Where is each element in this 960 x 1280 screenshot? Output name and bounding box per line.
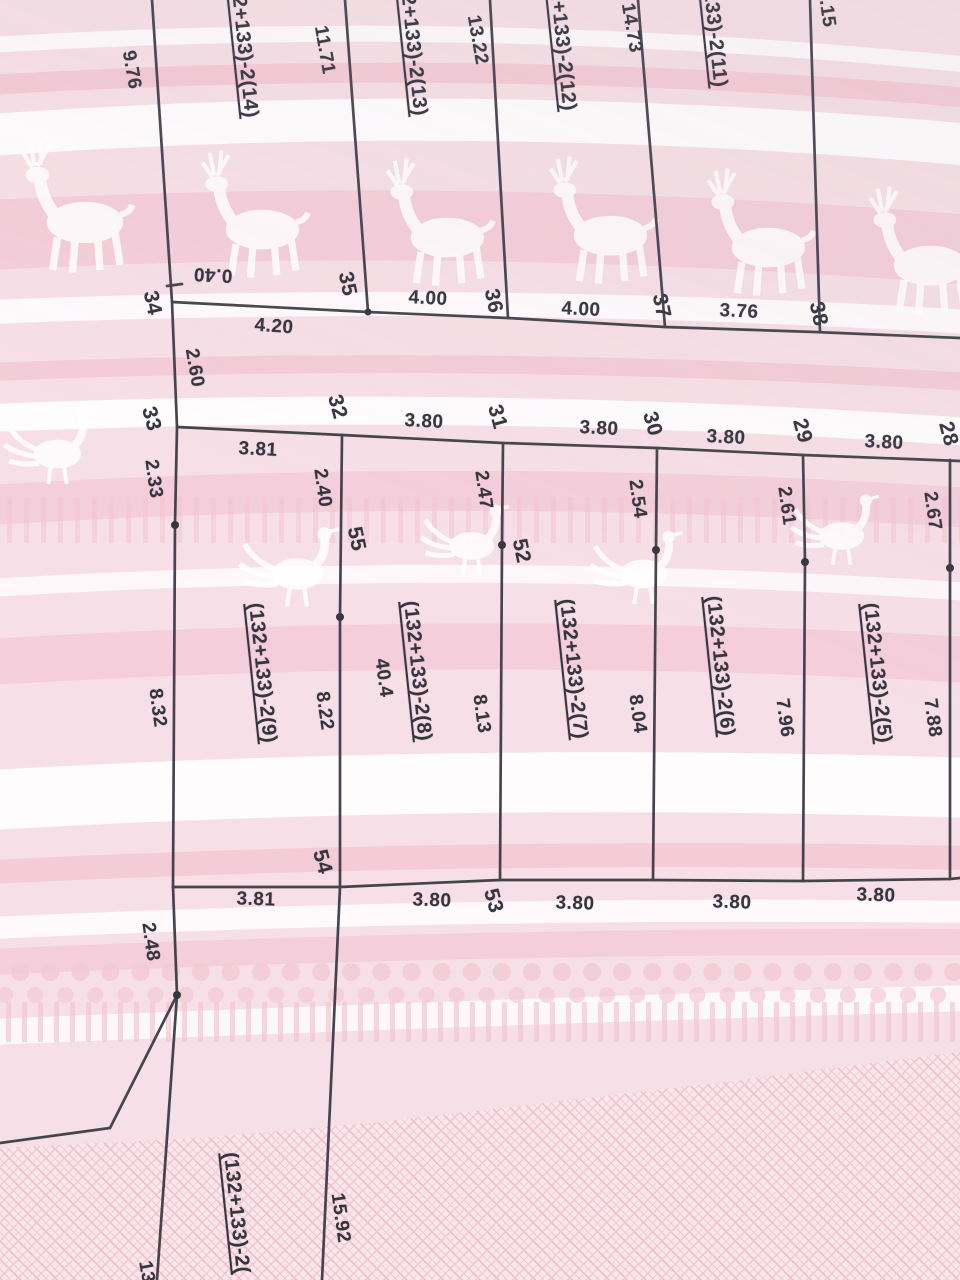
- point-52-label: 52: [507, 537, 536, 566]
- dim-3-80-t3: 3.80: [706, 426, 746, 450]
- point-37-label: 37: [647, 292, 676, 321]
- dim-0-40: 0.40: [193, 262, 233, 286]
- dim-8-15: 8.15: [812, 0, 839, 29]
- point-38-label: 38: [804, 300, 833, 329]
- dim-13-cut: 13: [133, 1259, 159, 1280]
- dim-3-80-t1: 3.80: [404, 410, 444, 434]
- dim-3-80-b3: 3.80: [712, 891, 752, 914]
- dim-3-80-b1: 3.80: [412, 889, 452, 912]
- dim-3-80-b4: 3.80: [856, 884, 896, 907]
- cadastral-map-photo: 9.76 (132+133)-2(14) 11.71 (132+133)-2(1…: [0, 0, 960, 1280]
- dim-3-80-t2: 3.80: [579, 417, 619, 441]
- dim-4-20: 4.20: [254, 315, 294, 340]
- point-35-label: 35: [333, 270, 362, 299]
- dim-4-00-a: 4.00: [408, 287, 448, 311]
- dim-3-80-b2: 3.80: [555, 892, 595, 915]
- dim-3-81-top: 3.81: [238, 438, 278, 462]
- point-55-label: 55: [342, 525, 371, 554]
- dim-4-00-b: 4.00: [561, 298, 601, 322]
- dim-3-81-b: 3.81: [236, 888, 276, 911]
- crosshatch-region: [0, 1052, 960, 1280]
- point-36-label: 36: [479, 287, 508, 316]
- map-drawing: [0, 0, 960, 1280]
- dim-3-76: 3.76: [719, 300, 759, 324]
- point-34-label: 34: [138, 289, 167, 318]
- dim-3-80-t4: 3.80: [864, 431, 904, 455]
